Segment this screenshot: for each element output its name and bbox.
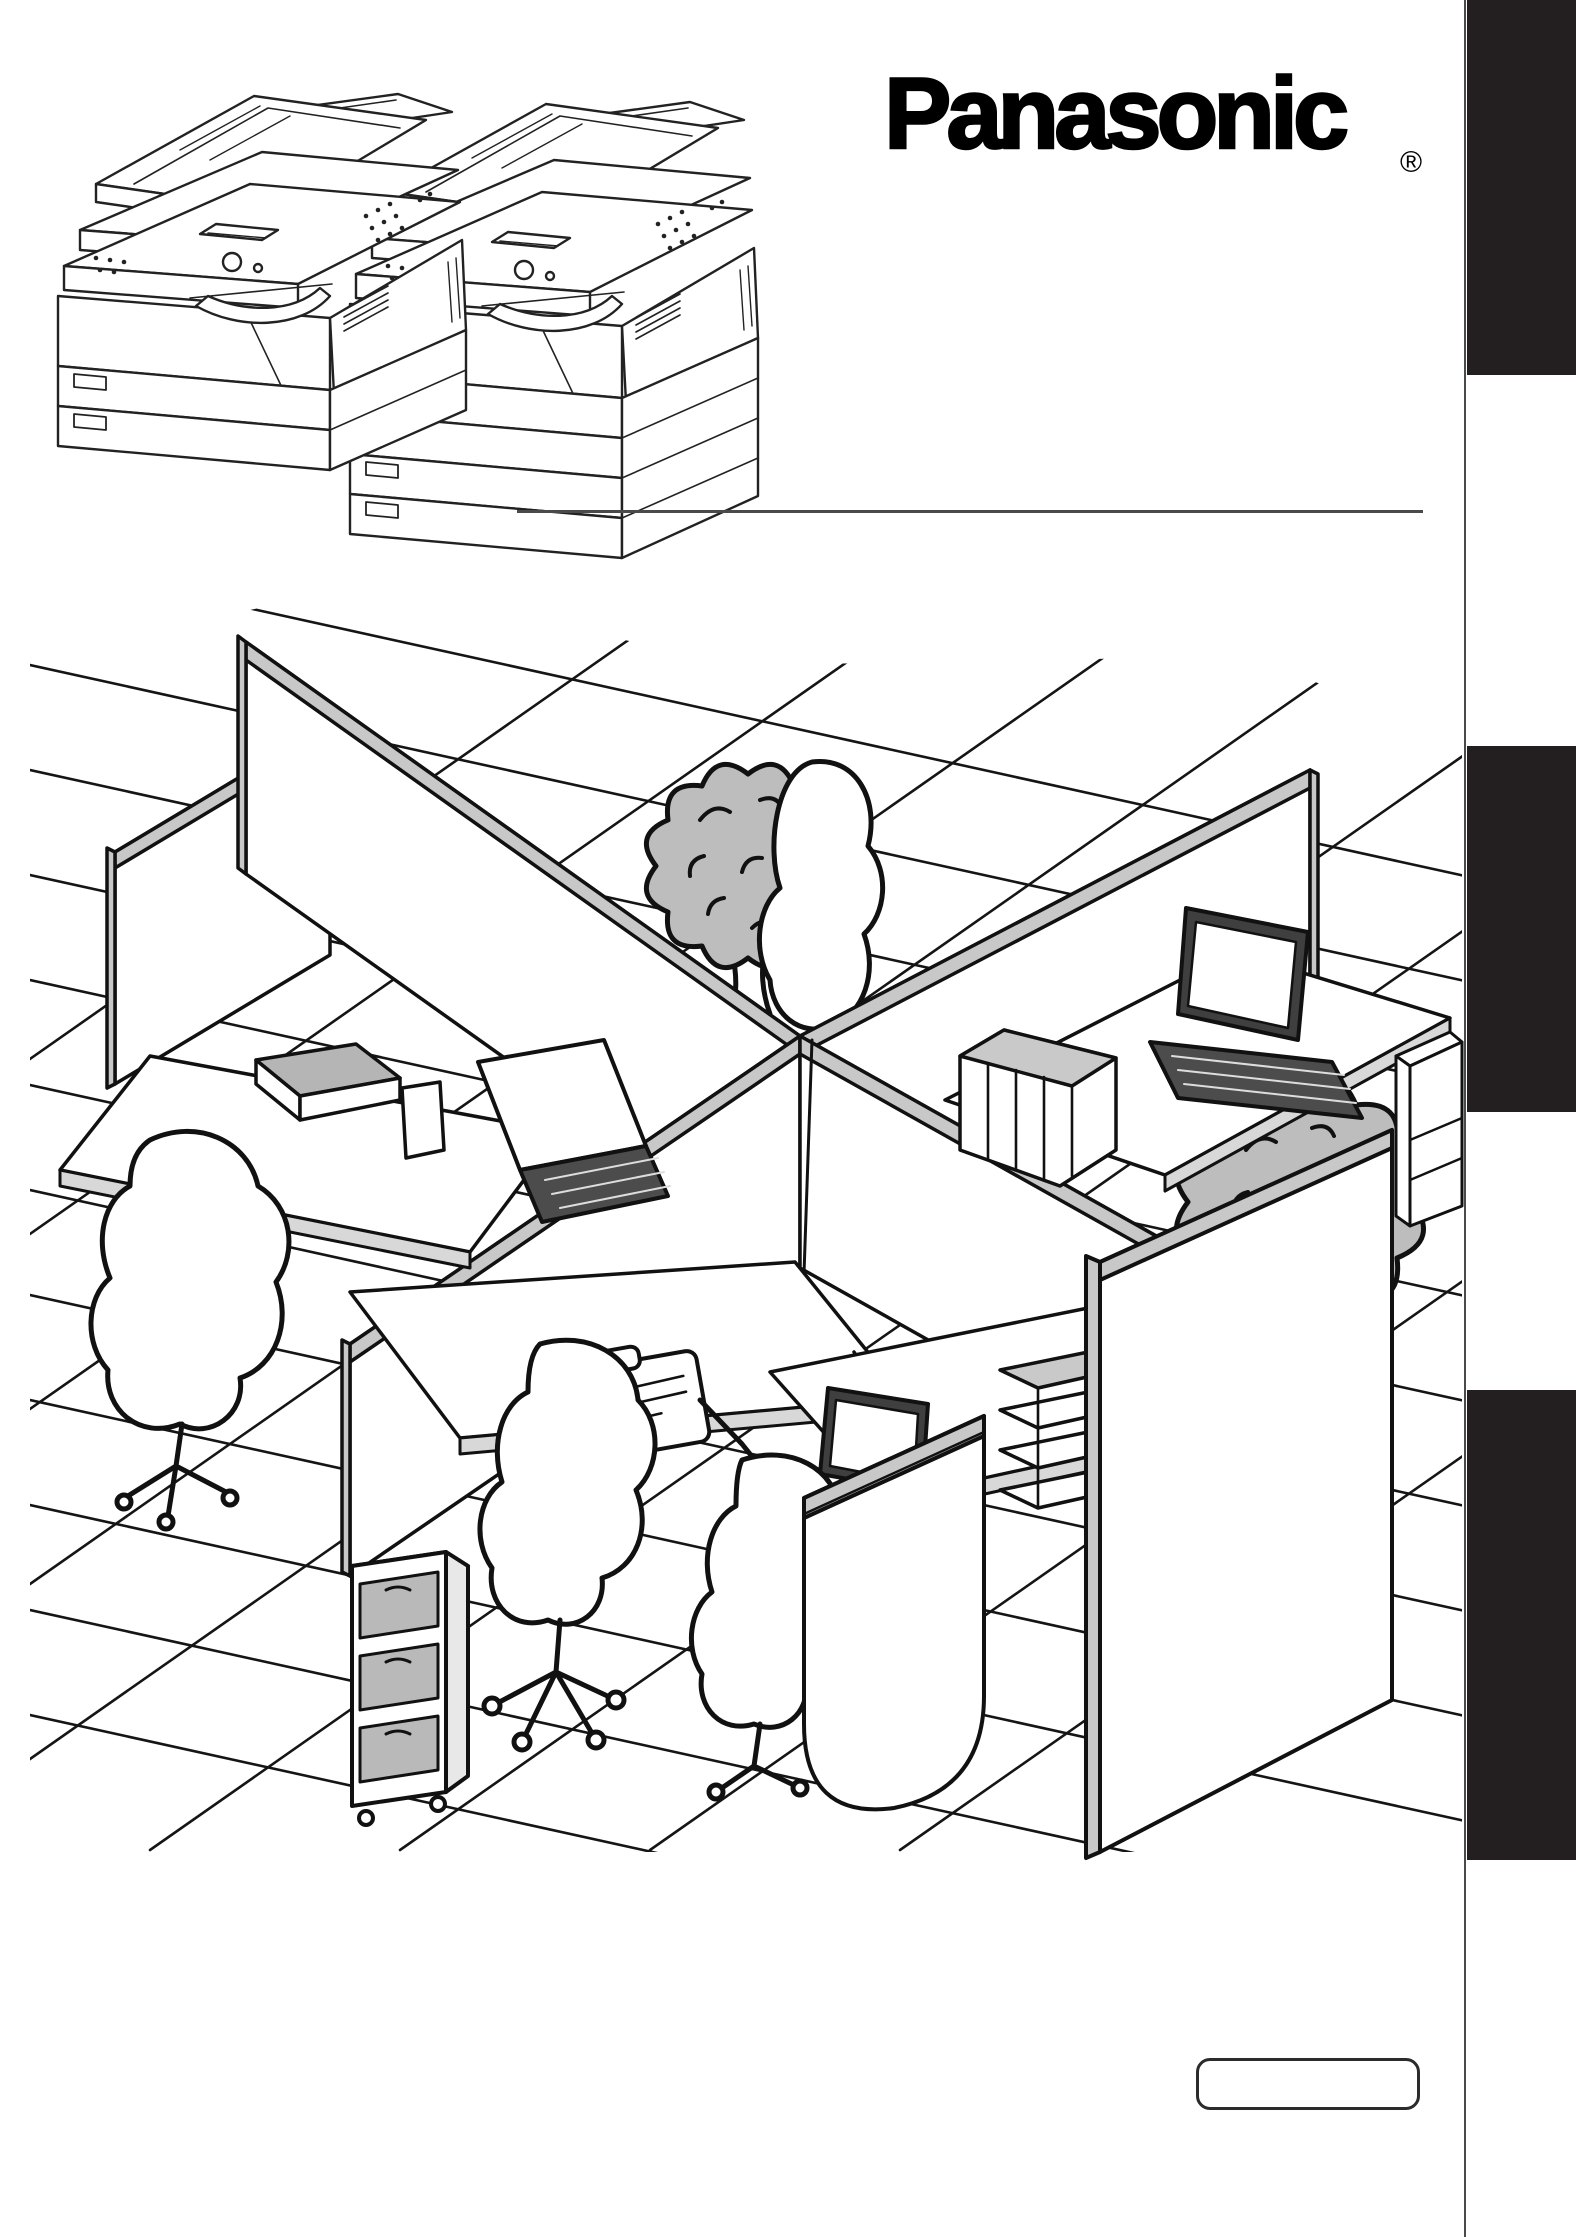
registered-trademark-symbol: ® [1400,146,1422,180]
side-index-tab-1 [1467,0,1576,375]
page-edge-rule [1464,0,1466,2237]
office-chair-icon [759,761,882,1029]
title-divider-line [517,510,1423,513]
manual-cover-page: Panasonic ® [0,0,1576,2237]
drawer-cart-icon [352,1552,468,1825]
copier-two-tray-icon [58,94,466,470]
office-cubicles-illustration [0,550,1576,2031]
printer-icon [1396,1032,1462,1226]
cover-artwork [0,0,1576,2237]
side-index-tab-2 [1467,746,1576,1112]
panasonic-logo: Panasonic [884,64,1344,165]
office-chair-icon [91,1131,289,1529]
model-number-box [1196,2058,1420,2110]
side-index-tab-3 [1467,1390,1576,1860]
